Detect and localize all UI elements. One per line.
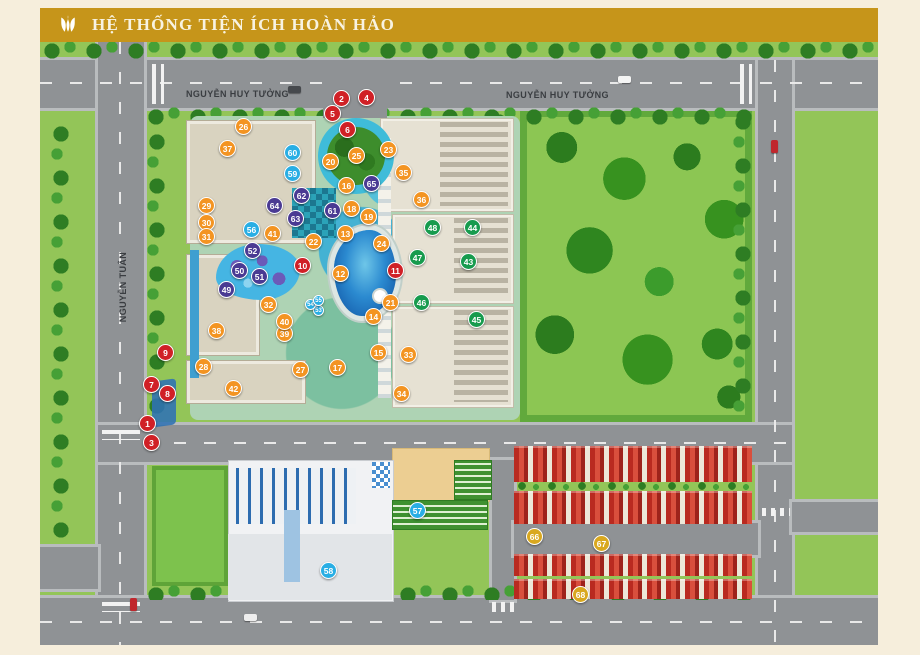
map-marker-8[interactable]: 8 bbox=[159, 385, 176, 402]
map-marker-43[interactable]: 43 bbox=[460, 253, 477, 270]
map-marker-47[interactable]: 47 bbox=[409, 249, 426, 266]
tulip-logo-icon bbox=[56, 13, 80, 37]
map-marker-45[interactable]: 45 bbox=[468, 311, 485, 328]
map-marker-67[interactable]: 67 bbox=[593, 535, 610, 552]
map-marker-13[interactable]: 13 bbox=[337, 225, 354, 242]
header-bar: HỆ THỐNG TIỆN ÍCH HOÀN HẢO bbox=[40, 8, 878, 42]
map-marker-7[interactable]: 7 bbox=[143, 376, 160, 393]
map-marker-38[interactable]: 38 bbox=[208, 322, 225, 339]
map-marker-66[interactable]: 66 bbox=[526, 528, 543, 545]
map-marker-10[interactable]: 10 bbox=[294, 257, 311, 274]
map-marker-40[interactable]: 40 bbox=[276, 313, 293, 330]
map-marker-11[interactable]: 11 bbox=[387, 262, 404, 279]
map-marker-60[interactable]: 60 bbox=[284, 144, 301, 161]
map-marker-63[interactable]: 63 bbox=[287, 210, 304, 227]
map-marker-6[interactable]: 6 bbox=[339, 121, 356, 138]
map-marker-33[interactable]: 33 bbox=[400, 346, 417, 363]
map-marker-19[interactable]: 19 bbox=[360, 208, 377, 225]
map-marker-55[interactable]: 55 bbox=[313, 295, 324, 306]
map-marker-31[interactable]: 31 bbox=[198, 228, 215, 245]
map-marker-59[interactable]: 59 bbox=[284, 165, 301, 182]
page: { "header": { "title": "HỆ THỐNG TIỆN ÍC… bbox=[0, 0, 920, 655]
map-marker-21[interactable]: 21 bbox=[382, 294, 399, 311]
map-marker-56[interactable]: 56 bbox=[243, 221, 260, 238]
map-marker-9[interactable]: 9 bbox=[157, 344, 174, 361]
marker-layer: 1234567891011121314151617181920212223242… bbox=[40, 42, 878, 645]
map-marker-26[interactable]: 26 bbox=[235, 118, 252, 135]
map-marker-12[interactable]: 12 bbox=[332, 265, 349, 282]
map-marker-44[interactable]: 44 bbox=[464, 219, 481, 236]
map-marker-48[interactable]: 48 bbox=[424, 219, 441, 236]
map-marker-36[interactable]: 36 bbox=[413, 191, 430, 208]
map-marker-2[interactable]: 2 bbox=[333, 90, 350, 107]
map-marker-46[interactable]: 46 bbox=[413, 294, 430, 311]
map-marker-23[interactable]: 23 bbox=[380, 141, 397, 158]
map-marker-18[interactable]: 18 bbox=[343, 200, 360, 217]
map-marker-5[interactable]: 5 bbox=[324, 105, 341, 122]
map-marker-17[interactable]: 17 bbox=[329, 359, 346, 376]
map-marker-64[interactable]: 64 bbox=[266, 197, 283, 214]
map-marker-51[interactable]: 51 bbox=[251, 268, 268, 285]
map-marker-62[interactable]: 62 bbox=[293, 187, 310, 204]
map-marker-52[interactable]: 52 bbox=[244, 242, 261, 259]
site-plan-map: NGUYỄN HUY TƯỞNG NGUYỄN HUY TƯỞNG NGUYỄN… bbox=[40, 42, 878, 645]
map-marker-58[interactable]: 58 bbox=[320, 562, 337, 579]
map-marker-27[interactable]: 27 bbox=[292, 361, 309, 378]
map-marker-28[interactable]: 28 bbox=[195, 358, 212, 375]
map-marker-14[interactable]: 14 bbox=[365, 308, 382, 325]
map-marker-29[interactable]: 29 bbox=[198, 197, 215, 214]
map-marker-22[interactable]: 22 bbox=[305, 233, 322, 250]
map-marker-1[interactable]: 1 bbox=[139, 415, 156, 432]
map-marker-16[interactable]: 16 bbox=[338, 177, 355, 194]
map-marker-41[interactable]: 41 bbox=[264, 225, 281, 242]
map-marker-24[interactable]: 24 bbox=[373, 235, 390, 252]
page-title: HỆ THỐNG TIỆN ÍCH HOÀN HẢO bbox=[92, 15, 395, 35]
map-marker-42[interactable]: 42 bbox=[225, 380, 242, 397]
map-marker-37[interactable]: 37 bbox=[219, 140, 236, 157]
map-marker-68[interactable]: 68 bbox=[572, 586, 589, 603]
map-marker-57[interactable]: 57 bbox=[409, 502, 426, 519]
map-marker-35[interactable]: 35 bbox=[395, 164, 412, 181]
map-marker-49[interactable]: 49 bbox=[218, 281, 235, 298]
map-marker-50[interactable]: 50 bbox=[231, 262, 248, 279]
map-marker-65[interactable]: 65 bbox=[363, 175, 380, 192]
map-marker-61[interactable]: 61 bbox=[324, 202, 341, 219]
map-marker-25[interactable]: 25 bbox=[348, 147, 365, 164]
map-marker-20[interactable]: 20 bbox=[322, 153, 339, 170]
map-marker-32[interactable]: 32 bbox=[260, 296, 277, 313]
map-marker-34[interactable]: 34 bbox=[393, 385, 410, 402]
map-marker-3[interactable]: 3 bbox=[143, 434, 160, 451]
map-marker-15[interactable]: 15 bbox=[370, 344, 387, 361]
map-marker-4[interactable]: 4 bbox=[358, 89, 375, 106]
